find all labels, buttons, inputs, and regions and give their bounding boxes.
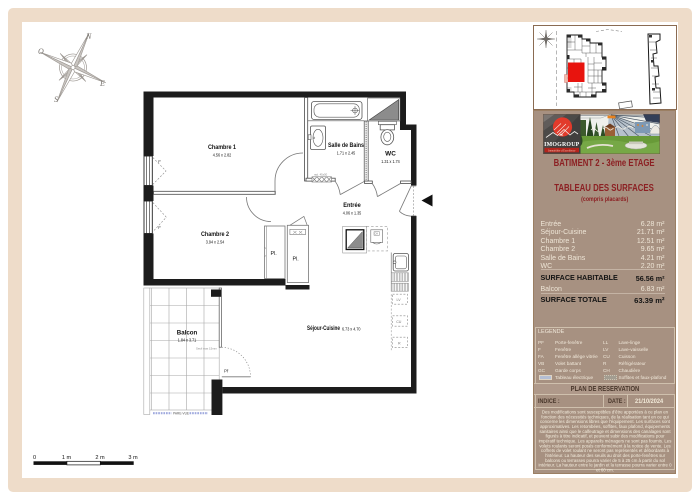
svg-text:Seuil max 15mm: Seuil max 15mm (196, 347, 217, 351)
svg-text:Salle de Bains: Salle de Bains (328, 142, 364, 149)
svg-text:Immobilier d'Excellence: Immobilier d'Excellence (547, 149, 576, 152)
svg-text:Pl.: Pl. (293, 257, 299, 263)
svg-text:E: E (99, 79, 105, 88)
svg-text:1.71 x 2.45: 1.71 x 2.45 (337, 151, 356, 156)
svg-text:PARE-VUE: PARE-VUE (173, 412, 189, 416)
svg-text:6.73 x 4.70: 6.73 x 4.70 (342, 327, 361, 332)
svg-text:F: F (158, 159, 161, 164)
svg-text:0: 0 (33, 455, 36, 461)
svg-text:4.06 x 1.35: 4.06 x 1.35 (343, 211, 362, 216)
svg-text:Chambre 2: Chambre 2 (201, 231, 229, 238)
svg-text:3 m: 3 m (128, 455, 138, 461)
svg-text:O: O (38, 47, 44, 56)
svg-text:Chambre 1: Chambre 1 (208, 144, 236, 151)
svg-text:CU: CU (396, 320, 402, 324)
svg-text:1.31 x 1.74: 1.31 x 1.74 (381, 159, 400, 164)
svg-text:Entrée: Entrée (343, 202, 361, 209)
svg-text:LV: LV (397, 298, 402, 302)
svg-text:R: R (398, 342, 401, 346)
svg-text:1 m: 1 m (62, 455, 72, 461)
svg-text:4.56 x 2.82: 4.56 x 2.82 (213, 153, 232, 158)
svg-text:S: S (54, 95, 58, 104)
svg-text:2 m: 2 m (95, 455, 105, 461)
svg-text:N: N (85, 32, 92, 41)
svg-text:CH: CH (374, 232, 378, 236)
svg-text:Séjour-Cuisine: Séjour-Cuisine (307, 325, 340, 332)
svg-text:Pl.: Pl. (271, 251, 277, 257)
svg-text:3.94 x 2.54: 3.94 x 2.54 (206, 240, 225, 245)
svg-text:Balcon: Balcon (177, 330, 198, 337)
svg-text:1.84 x 3.71: 1.84 x 3.71 (178, 338, 197, 343)
svg-text:F: F (158, 225, 161, 230)
svg-text:rad. 45x50: rad. 45x50 (314, 173, 328, 177)
svg-text:Pf: Pf (224, 369, 229, 374)
svg-text:IMOGROUP: IMOGROUP (544, 142, 580, 148)
svg-text:WC: WC (385, 151, 396, 158)
